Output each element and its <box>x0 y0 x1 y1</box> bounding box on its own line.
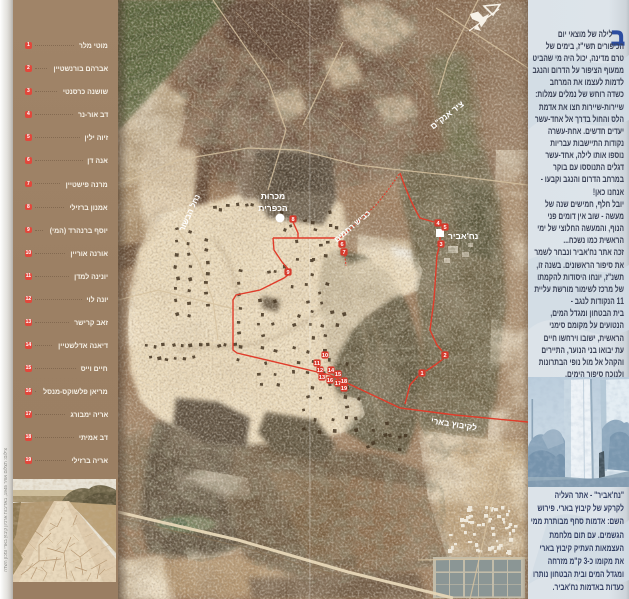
svg-text:הכפרית: הכפרית <box>258 203 288 213</box>
svg-text:10: 10 <box>322 353 328 359</box>
svg-text:1: 1 <box>420 371 423 377</box>
svg-text:12: 12 <box>317 368 323 374</box>
svg-text:7: 7 <box>342 250 345 256</box>
svg-text:מכרות: מכרות <box>261 191 285 201</box>
svg-text:6: 6 <box>340 242 343 248</box>
svg-text:11: 11 <box>314 361 320 367</box>
svg-text:15: 15 <box>335 372 341 378</box>
svg-text:19: 19 <box>341 386 347 392</box>
svg-text:13: 13 <box>319 375 325 381</box>
svg-text:16: 16 <box>327 378 333 384</box>
svg-text:2: 2 <box>443 353 446 359</box>
svg-text:8: 8 <box>291 217 294 223</box>
svg-text:נח'אביר: נח'אביר <box>448 231 478 241</box>
svg-text:3: 3 <box>439 242 442 248</box>
svg-text:18: 18 <box>341 379 347 385</box>
svg-text:5: 5 <box>443 225 446 231</box>
svg-text:9: 9 <box>286 270 289 276</box>
